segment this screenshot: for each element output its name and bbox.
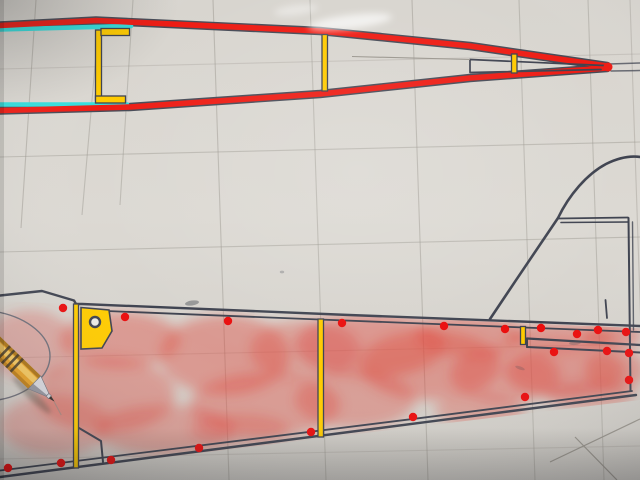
plan-photo-canvas (0, 0, 640, 480)
corner-shadow-topleft (0, 0, 180, 110)
left-edge-shadow (0, 0, 4, 480)
bottom-edge-shadow (0, 428, 640, 480)
plan-photo (0, 0, 640, 480)
